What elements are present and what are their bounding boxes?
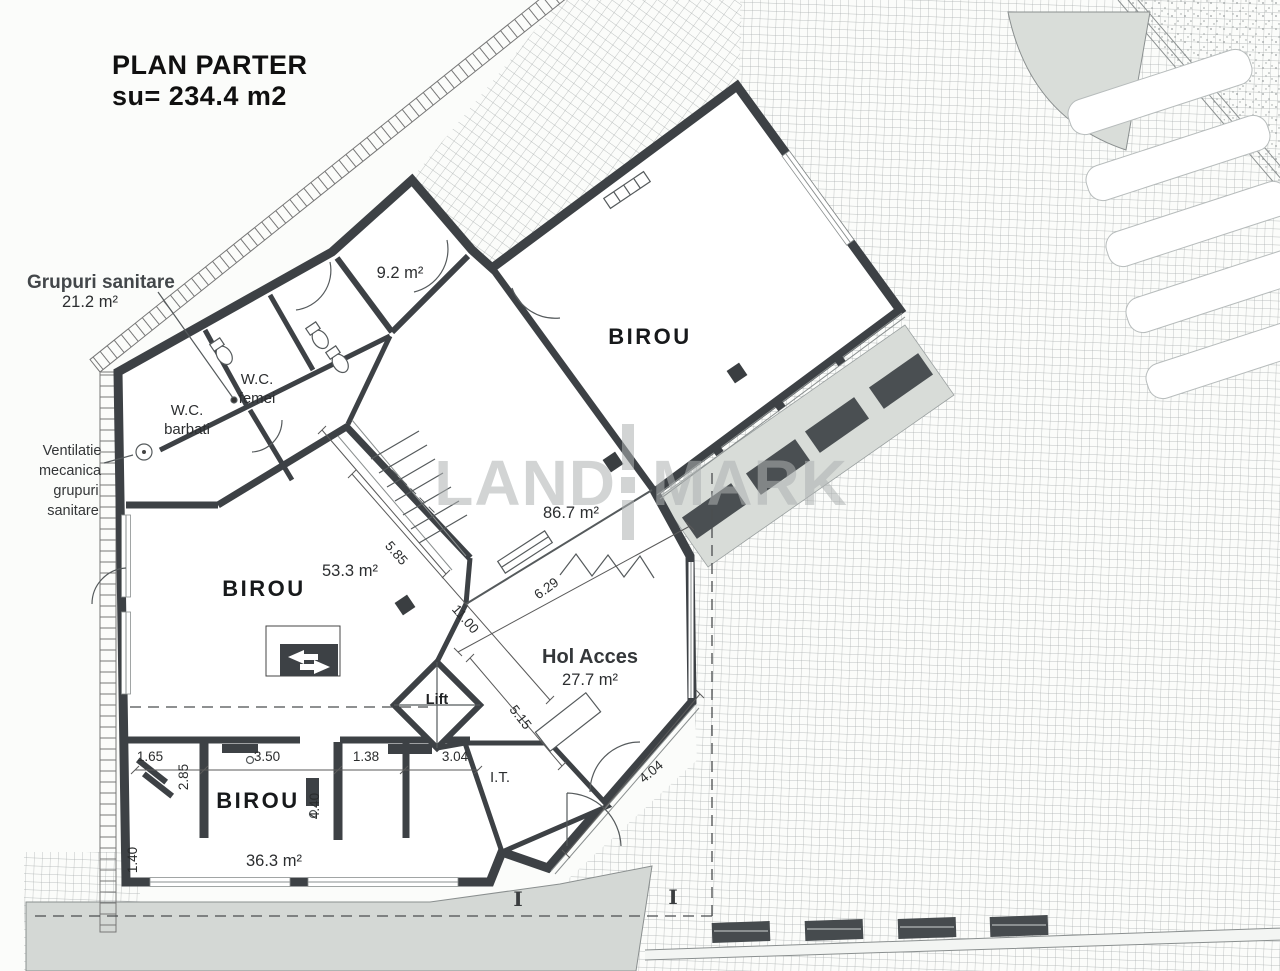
wc-femei-line2: femei <box>239 390 276 407</box>
dim-2-85: 2.85 <box>176 764 191 790</box>
dim-3-50: 3.50 <box>254 749 280 764</box>
dim-1-38: 1.38 <box>353 749 379 764</box>
room-label-lift: Lift <box>426 692 449 708</box>
dim-1-40: 1.40 <box>125 847 140 873</box>
watermark-right: MARK <box>652 447 848 519</box>
room-label-hol-acces: Hol Acces <box>542 646 638 668</box>
watermark-left: LAND <box>434 447 616 519</box>
section-marker-left: I <box>513 887 522 911</box>
wc-barbati-line2: barbati <box>164 421 210 438</box>
floor-plan-page: PLAN PARTER su= 234.4 m2 Grupuri sanitar… <box>0 0 1280 971</box>
room-area-birou-jos: 36.3 m² <box>246 852 302 870</box>
room-label-birou-mare: BIROU <box>608 324 691 349</box>
grupuri-sanitare-area: 21.2 m² <box>62 293 118 311</box>
room-area-birou-mijloc: 53.3 m² <box>322 562 378 580</box>
dim-3-04: 3.04 <box>442 749 469 764</box>
dim-1-65: 1.65 <box>137 749 163 764</box>
plan-area-total: su= 234.4 m2 <box>112 81 287 111</box>
room-label-birou-mijloc: BIROU <box>222 576 305 601</box>
boundary-ladder-strip <box>100 372 116 932</box>
room-label-it: I.T. <box>490 769 510 786</box>
ventilatie-line2: mecanica <box>39 463 102 479</box>
dim-4-40: 4.40 <box>307 793 322 819</box>
watermark-i-glyph <box>621 424 635 540</box>
section-marker-right: I <box>668 885 677 909</box>
plan-title: PLAN PARTER <box>112 50 308 80</box>
ventilatie-line4: sanitare <box>47 503 99 519</box>
room-label-birou-jos: BIROU <box>216 788 299 813</box>
ventilatie-line1: Ventilatie <box>43 443 102 459</box>
grupuri-sanitare-label: Grupuri sanitare <box>27 272 175 293</box>
floor-plan-drawing: PLAN PARTER su= 234.4 m2 Grupuri sanitar… <box>0 0 1280 971</box>
arrows-symbol <box>266 626 340 676</box>
room-area-camera-mica: 9.2 m² <box>377 264 424 282</box>
ventilatie-line3: grupuri <box>53 483 98 499</box>
plan-title-block: PLAN PARTER su= 234.4 m2 <box>112 50 308 111</box>
wc-femei-line1: W.C. <box>241 371 274 388</box>
room-area-hol-acces: 27.7 m² <box>562 671 618 689</box>
wc-barbati-line1: W.C. <box>171 402 204 419</box>
